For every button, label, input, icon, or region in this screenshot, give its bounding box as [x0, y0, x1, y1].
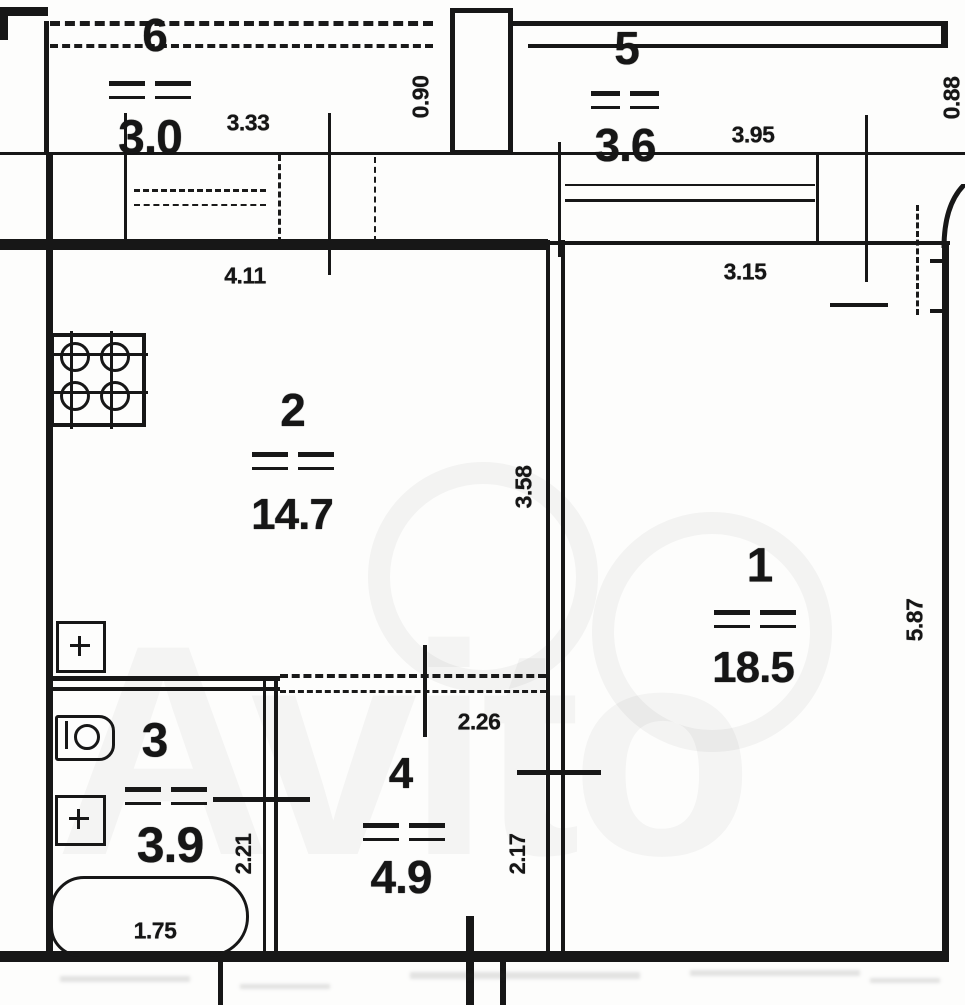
room-1-number: 1 — [747, 539, 774, 594]
window-right-glazing-1 — [565, 184, 815, 186]
dim-balcony6-width: 3.33 — [227, 110, 270, 137]
wall-bath-right-a — [263, 681, 266, 957]
room-3-divider — [125, 787, 207, 805]
room-1-divider — [714, 610, 796, 628]
wash-sink-icon — [55, 795, 106, 846]
shaft-column — [450, 8, 513, 155]
room-2-number: 2 — [280, 383, 306, 437]
wall-bath-right-b — [274, 681, 278, 957]
scan-artifact — [690, 970, 860, 976]
door-leaf-dashed — [916, 205, 919, 315]
window-left-glazing-2 — [134, 204, 266, 206]
room-3-area: 3.9 — [137, 816, 204, 874]
wall-interior-top-left — [0, 239, 548, 250]
scan-artifact — [60, 976, 190, 982]
scan-artifact — [240, 984, 330, 989]
wall-top-left-stub-v — [0, 7, 8, 40]
balcony6-railing-outer — [50, 21, 433, 26]
room-4-number: 4 — [389, 749, 413, 799]
room-4-area: 4.9 — [371, 850, 432, 904]
dim-extension-room1 — [865, 115, 868, 282]
dim-hall-width: 2.26 — [458, 709, 501, 736]
dim-kitchen-depth: 3.58 — [511, 466, 538, 509]
balcony6-railing-inner — [50, 44, 433, 48]
stove-icon — [50, 333, 146, 427]
dim-extension-kitchen — [328, 113, 331, 275]
window-left-glazing-1 — [134, 189, 266, 192]
room-2-area: 14.7 — [251, 490, 333, 540]
window-right-glazing-2 — [565, 199, 815, 202]
balcony5-railing-inner — [528, 44, 948, 48]
wall-interior-top-right — [548, 241, 950, 245]
bathtub-icon — [50, 876, 249, 957]
window-left-jamb-2 — [278, 155, 281, 243]
wall-right-exterior — [942, 245, 949, 960]
room-6-area: 3.0 — [118, 111, 182, 166]
room-5-divider — [591, 91, 659, 109]
balcony5-railing-outer — [505, 21, 948, 26]
wall-left-exterior — [46, 155, 53, 957]
room-2-divider — [252, 452, 334, 470]
scan-artifact — [410, 972, 640, 979]
dim-bathtub-length: 1.75 — [134, 918, 177, 945]
dim-balcony5-width: 3.95 — [732, 122, 775, 149]
dim-tick-room1-top — [830, 303, 888, 307]
toilet-icon — [55, 715, 115, 761]
window-left-dashed-edge — [374, 157, 376, 242]
door-tick-hall-room1 — [517, 770, 601, 775]
room-6-divider — [109, 81, 191, 99]
room-4-divider — [363, 823, 445, 841]
dim-extension-hall — [423, 645, 427, 737]
wall-center-line-b — [561, 240, 565, 957]
dim-kitchen-width: 4.11 — [224, 263, 266, 290]
dim-room1-depth: 5.87 — [902, 599, 929, 642]
door-tick-bath-hall — [213, 797, 310, 802]
scan-artifact — [870, 978, 940, 983]
room-1-area: 18.5 — [712, 643, 794, 693]
dim-room1-width: 3.15 — [724, 259, 767, 286]
wall-hall-top-dashed-a — [280, 674, 546, 678]
entry-door-post-1 — [466, 916, 474, 1005]
wall-hall-top-dashed-b — [280, 690, 546, 693]
room-3-number: 3 — [142, 714, 169, 769]
wall-bath-top-b — [52, 687, 280, 691]
dim-balcony5-depth: 0.88 — [939, 77, 965, 120]
wall-center-line-a — [546, 240, 550, 957]
entry-door-post-2 — [500, 957, 506, 1005]
kitchen-sink-icon — [56, 621, 106, 673]
room-5-area: 3.6 — [595, 118, 656, 172]
wall-bath-top-a — [52, 676, 280, 681]
dim-bath-depth: 2.21 — [231, 834, 257, 875]
wall-balcony6-left-post — [44, 21, 49, 152]
balcony5-railing-end-post — [941, 21, 948, 48]
entry-door-post-3 — [218, 957, 223, 1005]
dim-balcony6-depth: 0.90 — [408, 76, 435, 119]
window-right-jamb — [816, 155, 819, 243]
room-5-number: 5 — [614, 21, 640, 75]
floor-plan: Avito — [0, 0, 965, 1005]
dim-hall-depth: 2.17 — [505, 834, 531, 875]
room-6-number: 6 — [142, 8, 168, 62]
